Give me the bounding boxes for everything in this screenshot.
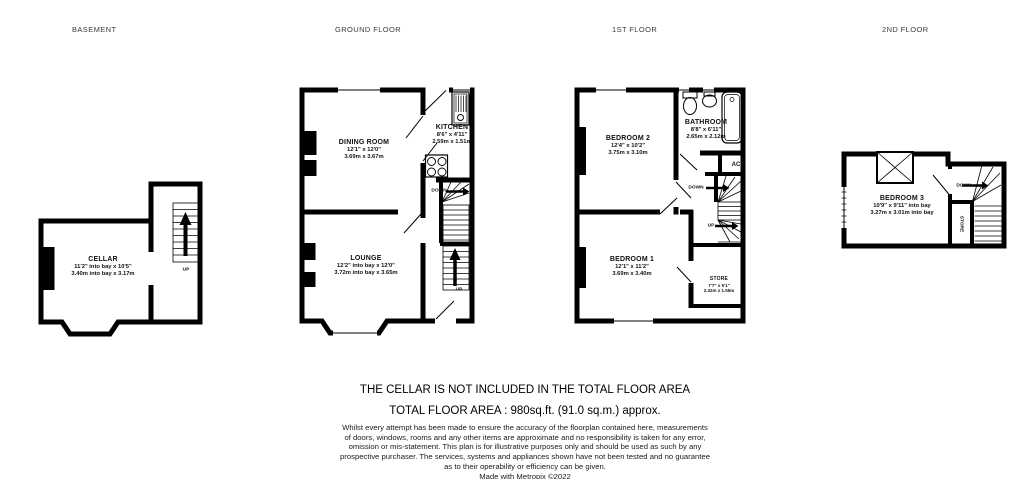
room-name-bathroom: BATHROOM: [685, 119, 727, 127]
stair-label-up-ground: UP: [456, 288, 463, 293]
room-label-bathroom: BATHROOM 8'8" x 6'11" 2.65m x 2.12m: [685, 119, 727, 140]
room-label-lounge: LOUNGE 12'2" into bay x 12'0" 3.72m into…: [334, 255, 397, 276]
room-dims-dining-imperial: 12'1" x 12'0": [339, 147, 389, 154]
room-dims-dining-metric: 3.69m x 3.67m: [339, 154, 389, 161]
room-dims-bedroom1-metric: 3.69m x 3.40m: [610, 271, 654, 278]
total-floor-area: TOTAL FLOOR AREA : 980sq.ft. (91.0 sq.m.…: [389, 405, 660, 417]
disclaimer-line: of doors, windows, rooms and any other i…: [340, 433, 710, 443]
room-dims-bedroom3-imperial: 10'9" x 9'11" into bay: [870, 203, 933, 210]
floor-title-second: 2ND FLOOR: [882, 25, 929, 34]
store-label-second: STORE: [959, 216, 964, 232]
stair-label-up-first: UP: [708, 224, 715, 229]
stair-label-down-second: DOWN: [956, 184, 971, 189]
room-name-bedroom1: BEDROOM 1: [610, 256, 654, 264]
room-name-bedroom3: BEDROOM 3: [870, 195, 933, 203]
stair-label-down-ground: DOWN: [431, 189, 446, 194]
room-name-kitchen: KITCHEN: [432, 124, 471, 132]
stair-label-down-first: DOWN: [688, 186, 703, 191]
airing-cupboard-label: AC: [732, 162, 741, 168]
disclaimer-line: omission or mis-statement. This plan is …: [340, 442, 710, 452]
room-label-kitchen: KITCHEN 8'6" x 4'11" 2.59m x 1.51m: [432, 124, 471, 145]
room-dims-kitchen-imperial: 8'6" x 4'11": [432, 132, 471, 139]
room-name-bedroom2: BEDROOM 2: [606, 135, 650, 143]
stair-label-up-basement: UP: [183, 268, 190, 273]
cellar-exclusion-note: THE CELLAR IS NOT INCLUDED IN THE TOTAL …: [360, 384, 690, 396]
room-dims-bedroom1-imperial: 12'1" x 11'2": [610, 264, 654, 271]
room-label-dining: DINING ROOM 12'1" x 12'0" 3.69m x 3.67m: [339, 139, 389, 160]
room-dims-lounge-imperial: 12'2" into bay x 12'0": [334, 263, 397, 270]
metropix-credit: Made with Metropix ©2022: [340, 472, 710, 479]
room-label-store-first: STORE 7'7" x 5'1" 2.32m x 1.55m: [704, 277, 735, 293]
floor-title-ground: GROUND FLOOR: [335, 25, 401, 34]
disclaimer: Whilst every attempt has been made to en…: [340, 423, 710, 479]
disclaimer-line: as to their operability or efficiency ca…: [340, 462, 710, 472]
room-dims-cellar-imperial: 11'2" into bay x 10'5": [71, 264, 134, 271]
room-name-lounge: LOUNGE: [334, 255, 397, 263]
room-dims-lounge-metric: 3.72m into bay x 3.65m: [334, 270, 397, 277]
skylight-icon: [877, 152, 913, 183]
basement-chimney-breast: [44, 247, 55, 290]
room-dims-kitchen-metric: 2.59m x 1.51m: [432, 139, 471, 146]
disclaimer-line: Whilst every attempt has been made to en…: [340, 423, 710, 433]
second-window-gap: [841, 187, 848, 228]
floorplan-page: BASEMENT CELLAR 11'2" into bay x 10': [0, 0, 1024, 479]
room-label-bedroom3: BEDROOM 3 10'9" x 9'11" into bay 3.27m x…: [870, 195, 933, 216]
floor-title-first: 1ST FLOOR: [612, 25, 657, 34]
room-dims-store-metric: 2.32m x 1.55m: [704, 288, 735, 293]
room-dims-bathroom-imperial: 8'8" x 6'11": [685, 127, 727, 134]
disclaimer-line: prospective purchaser. The services, sys…: [340, 452, 710, 462]
room-dims-cellar-metric: 3.40m into bay x 3.17m: [71, 271, 134, 278]
room-name-cellar: CELLAR: [71, 256, 134, 264]
room-name-dining: DINING ROOM: [339, 139, 389, 147]
room-dims-bedroom3-metric: 3.27m x 3.01m into bay: [870, 210, 933, 217]
room-label-cellar: CELLAR 11'2" into bay x 10'5" 3.40m into…: [71, 256, 134, 277]
ground-floor-plan: [293, 83, 479, 338]
room-dims-bathroom-metric: 2.65m x 2.12m: [685, 134, 727, 141]
room-label-bedroom1: BEDROOM 1 12'1" x 11'2" 3.69m x 3.40m: [610, 256, 654, 277]
room-dims-store-imperial: 7'7" x 5'1": [704, 283, 735, 288]
room-dims-bedroom2-metric: 3.75m x 3.10m: [606, 150, 650, 157]
room-label-bedroom2: BEDROOM 2 12'4" x 10'2" 3.75m x 3.10m: [606, 135, 650, 156]
room-dims-bedroom2-imperial: 12'4" x 10'2": [606, 143, 650, 150]
floor-title-basement: BASEMENT: [72, 25, 116, 34]
